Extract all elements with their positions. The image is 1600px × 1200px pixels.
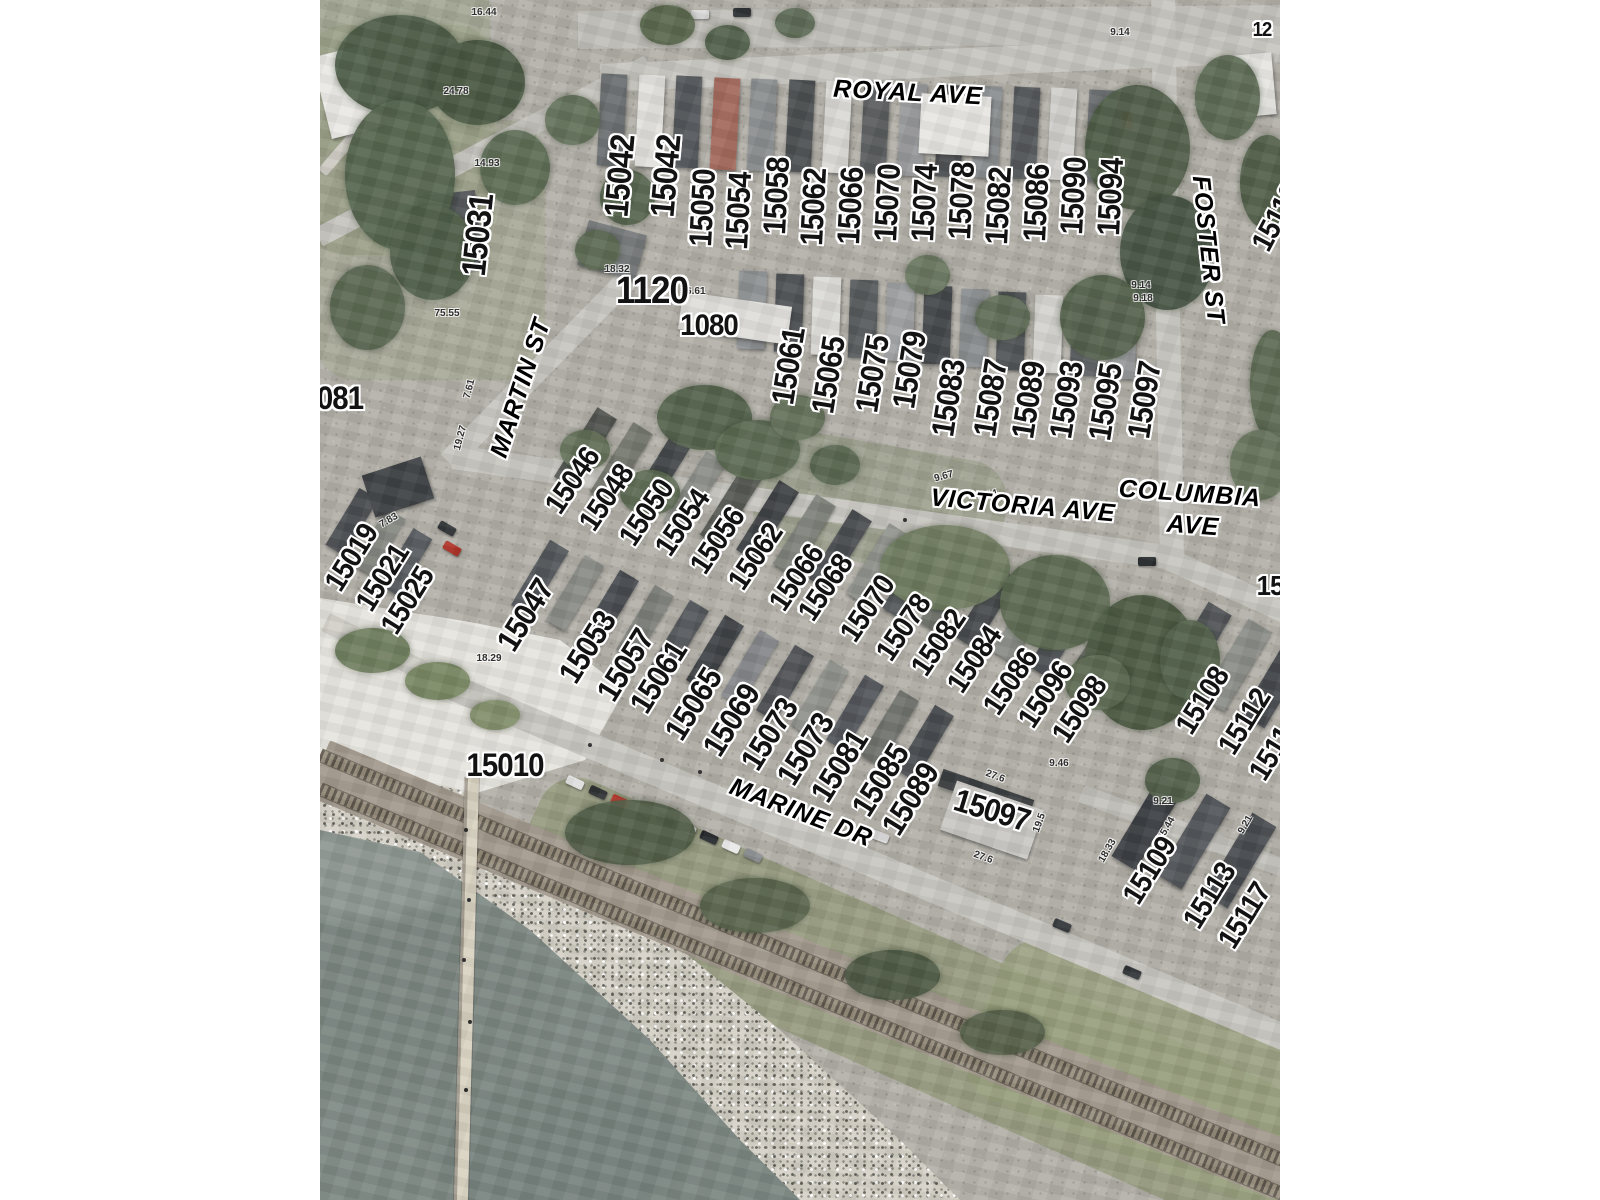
address-label-15090: 15090 <box>1055 157 1091 236</box>
address-label-15058: 15058 <box>758 157 794 236</box>
address-label-15086: 15086 <box>1018 164 1054 243</box>
elevation-label: 24.78 <box>443 87 468 97</box>
address-label-15042: 15042 <box>599 133 640 218</box>
address-label-15110: 15110 <box>1247 180 1280 256</box>
elevation-label: 9.18 <box>1133 294 1152 304</box>
elevation-label: 14.93 <box>474 159 499 169</box>
elevation-label: 7.83 <box>378 512 400 530</box>
street-label-royal-ave: ROYAL AVE <box>833 77 984 110</box>
left-margin <box>0 0 320 1200</box>
elevation-label: 27.6 <box>972 850 994 866</box>
elevation-label: 19.27 <box>453 425 469 452</box>
elevation-label: 18.33 <box>1097 838 1118 865</box>
elevation-label: 75.55 <box>434 309 459 319</box>
address-label-15074: 15074 <box>906 164 942 243</box>
address-label-15097: 15097 <box>1122 359 1166 440</box>
elevation-label: 9.14 <box>1131 281 1150 291</box>
address-label-15109: 15109 <box>1118 832 1182 909</box>
street-label-columbia: COLUMBIA <box>1118 477 1262 512</box>
address-label-15061: 15061 <box>766 325 810 406</box>
elevation-label: 9.14 <box>1110 28 1129 38</box>
street-label-ave: AVE <box>1166 512 1220 541</box>
address-label-1120: 1120 <box>616 272 688 310</box>
elevation-label: 16.44 <box>471 8 496 18</box>
street-label-martin-st: MARTIN ST <box>487 315 555 460</box>
address-label-15047: 15047 <box>491 574 559 656</box>
address-label-15094: 15094 <box>1092 158 1128 237</box>
address-label-15097: 15097 <box>950 783 1033 836</box>
address-label-081: 081 <box>320 382 363 414</box>
elevation-label: 27.6 <box>984 769 1006 785</box>
elevation-label: 9.21 <box>1237 814 1255 836</box>
address-label-15065: 15065 <box>806 334 850 415</box>
address-label-15042: 15042 <box>645 133 686 218</box>
aerial-map-viewport[interactable]: 16.449.1424.7814.9318.3236.619.149.1875.… <box>320 0 1280 1200</box>
address-label-15062: 15062 <box>795 168 831 247</box>
address-label-15083: 15083 <box>926 357 970 438</box>
address-label-15050: 15050 <box>684 169 720 248</box>
elevation-label: 9.67 <box>933 470 954 485</box>
address-label-1080: 1080 <box>680 311 738 341</box>
elevation-label: 18.29 <box>476 654 501 664</box>
address-label-15010: 15010 <box>466 749 543 781</box>
map-labels-layer: 16.449.1424.7814.9318.3236.619.149.1875.… <box>320 0 1280 1200</box>
address-label-15066: 15066 <box>832 167 868 246</box>
address-label-15082: 15082 <box>980 167 1016 246</box>
street-label-victoria-ave: VICTORIA AVE <box>929 485 1116 526</box>
elevation-label: 19.5 <box>1032 812 1048 834</box>
elevation-label: 9.21 <box>1153 797 1172 807</box>
right-margin <box>1280 0 1600 1200</box>
elevation-label: 9.46 <box>1049 759 1068 769</box>
address-label-15031: 15031 <box>457 192 499 277</box>
address-label-15054: 15054 <box>720 172 756 251</box>
address-label-15070: 15070 <box>869 164 905 243</box>
address-label-15078: 15078 <box>943 162 979 241</box>
address-label-15: 15 <box>1257 572 1280 600</box>
street-label-foster-st: FOSTER ST <box>1188 174 1228 325</box>
elevation-label: 7.61 <box>463 378 478 399</box>
address-label-12: 12 <box>1253 20 1272 40</box>
